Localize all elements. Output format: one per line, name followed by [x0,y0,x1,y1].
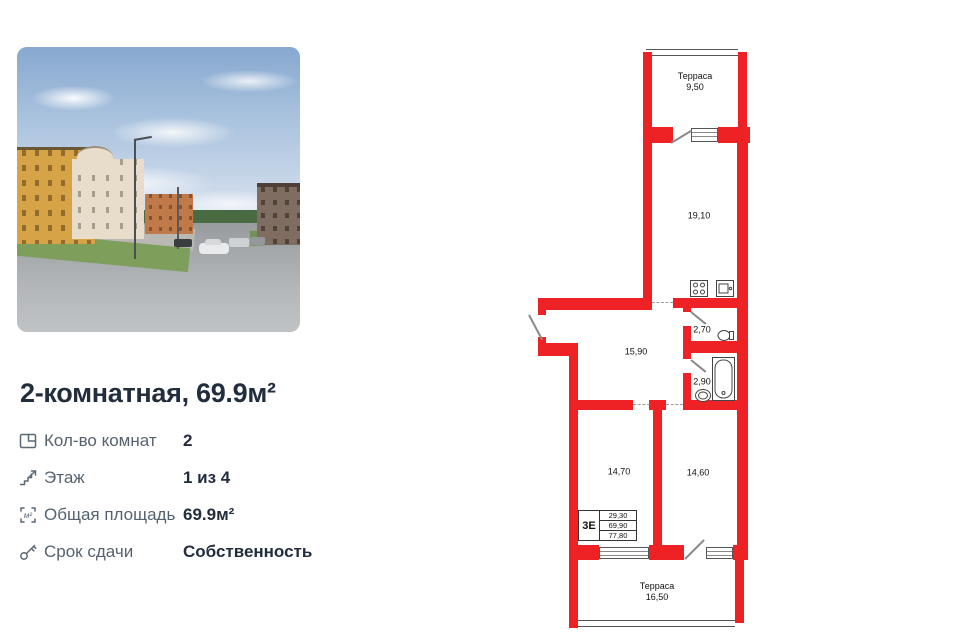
room-label-bathroom: 2,90 [693,377,711,388]
room-label-wc: 2,70 [693,325,711,336]
plan-stamp-series: 3Е [579,511,600,540]
wall [733,545,748,560]
washbasin-icon [694,388,712,408]
room-label-living: 19,10 [688,211,711,222]
room-label-terrace-top: Терраса 9,50 [678,71,713,93]
wall [542,298,652,310]
wall [569,343,578,628]
wall [737,143,748,560]
wall [569,545,599,560]
window [691,128,718,142]
opening-dashed [666,404,683,405]
plan-stamp-value: 69,90 [600,521,636,531]
wall [569,400,633,410]
stove-icon [690,280,708,302]
door-swing [690,359,706,373]
plan-stamp-value: 29,30 [600,511,636,521]
opening-dashed [633,404,650,405]
terrace-railing [646,49,738,56]
room-label-terrace-bottom: Терраса 16,50 [640,581,675,603]
terrace-railing [578,620,735,627]
wall [643,143,652,303]
door-swing [670,130,692,144]
wall [649,545,684,560]
wall [735,560,744,623]
wall [683,373,691,402]
wall [718,127,750,143]
bathtub-icon [712,357,735,406]
toilet-icon [716,328,735,348]
opening-dashed [652,302,673,303]
kitchen-sink-icon [716,280,734,302]
door-swing [684,539,705,560]
wall [649,400,666,410]
wall [538,298,546,315]
entrance-door-swing [528,315,543,341]
room-label-bedroom-left: 14,70 [608,467,631,478]
window [706,547,733,559]
window [599,547,649,559]
plan-stamp-value: 77,80 [600,531,636,540]
wall [683,304,691,312]
floor-plan[interactable]: Терраса 9,50 19,10 15,90 2,70 2,90 14,70… [0,0,960,640]
listing-page: 2-комнатная, 69.9м² Кол-во комнат 2 Этаж… [0,0,960,640]
plan-stamp: 3Е 29,30 69,90 77,80 [578,510,637,541]
room-label-bedroom-right: 14,60 [687,468,710,479]
wall [653,410,662,547]
door-swing [690,311,706,325]
wall [683,353,691,359]
room-label-hall: 15,90 [625,347,648,358]
wall [643,127,673,143]
